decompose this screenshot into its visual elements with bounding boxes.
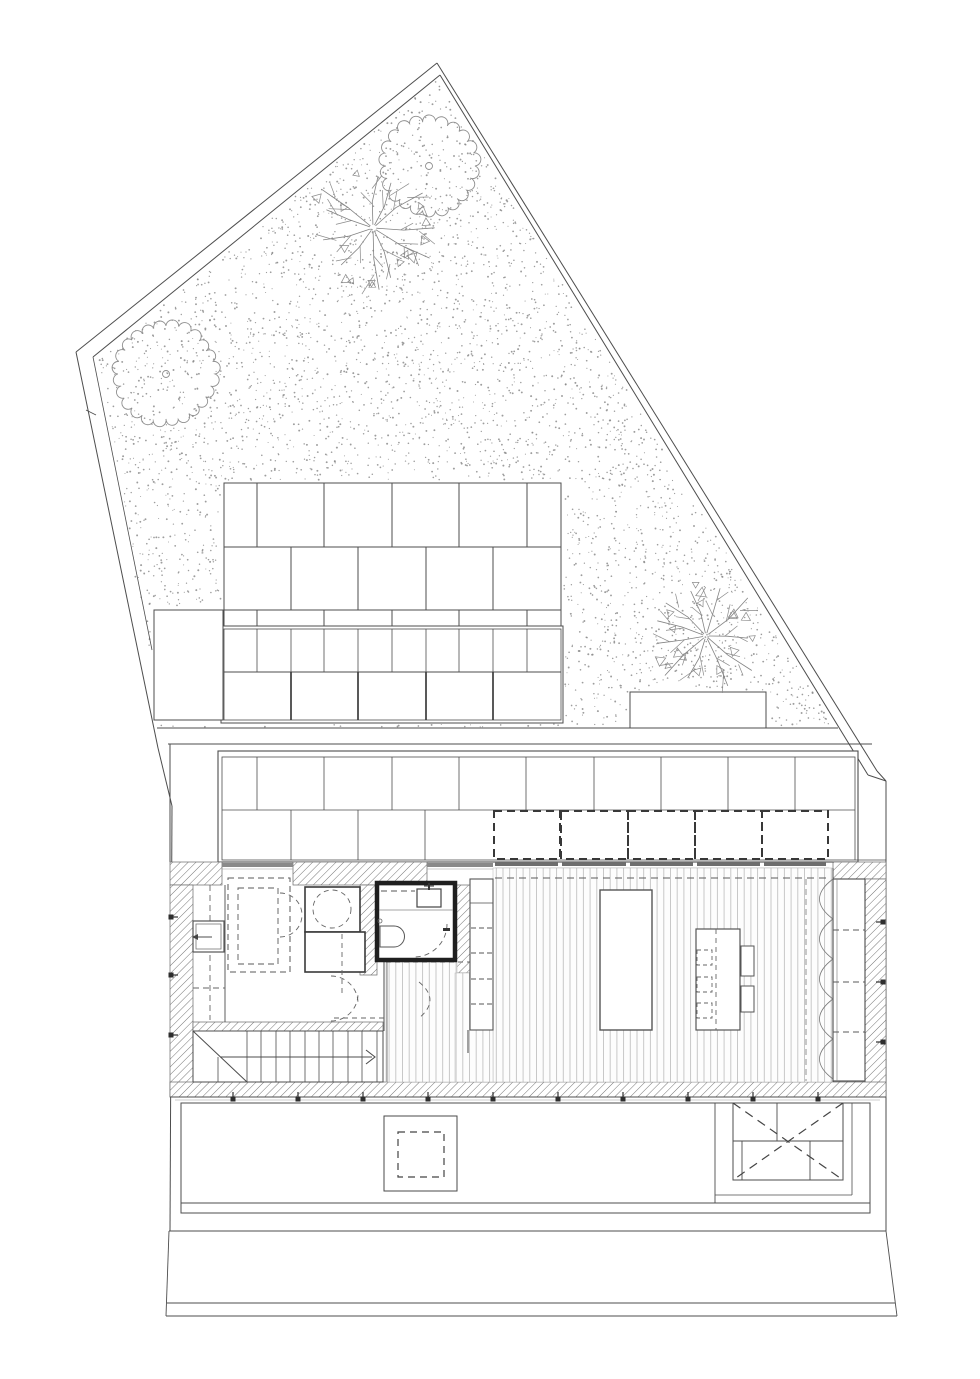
garage-roof-panels [154, 483, 563, 723]
street-band [166, 1231, 897, 1316]
floor-plan-page [0, 0, 980, 1379]
lower-terrace [181, 1103, 870, 1213]
floor-plan-canvas [0, 0, 980, 1379]
house-roof-panels [168, 744, 886, 862]
